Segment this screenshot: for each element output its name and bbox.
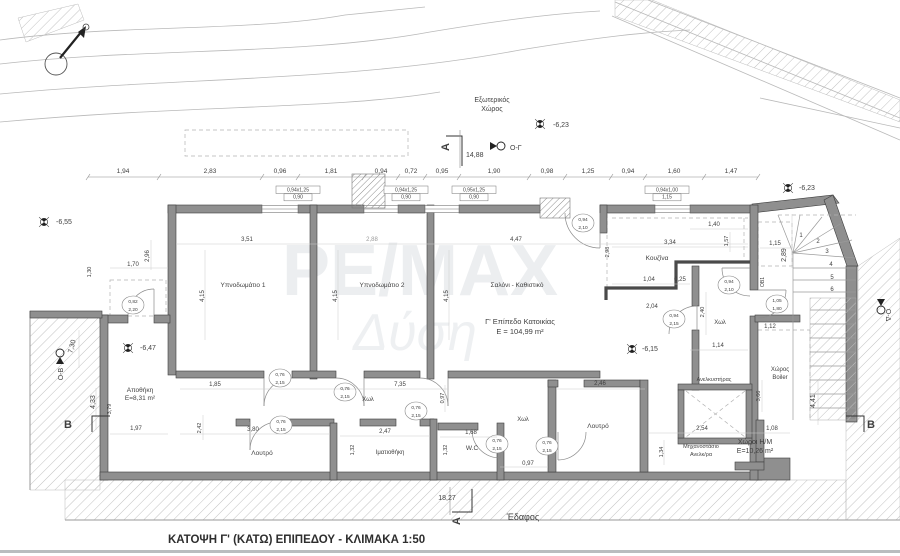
room-label-hall: Χωλ <box>714 320 726 326</box>
dim-label: 2,04 <box>646 304 658 310</box>
dim-label: 3,66 <box>756 391 762 402</box>
room-label-living: Σαλόνι - Καθιστικό <box>491 281 544 289</box>
door-tag: 2,15 <box>411 413 421 419</box>
dim-label: 1,25 <box>582 168 595 175</box>
level-value: -6,15 <box>642 346 658 353</box>
dim-label: 2,46 <box>594 381 606 387</box>
dim-label: 3,34 <box>664 240 676 246</box>
floor-plan-canvas: ΡΕ/ΜΑΧ Δύση <box>0 0 900 556</box>
dim-label: 1,04 <box>643 277 655 283</box>
dim-label: 18,27 <box>438 495 456 502</box>
room-label-boiler: Boiler <box>772 375 787 381</box>
dim-label: 1,08 <box>766 426 778 432</box>
dim-label: 1,57 <box>724 236 730 247</box>
room-label-hall: Χωλ <box>362 397 374 403</box>
door-tag: 0,82 <box>128 299 138 305</box>
dim-label: 0,25 <box>674 277 686 283</box>
room-label-machine-room: Μηχανοστάσιο <box>683 443 719 450</box>
section-marker-letter: A <box>440 143 452 151</box>
door-tag: 0,94 <box>724 279 734 285</box>
dim-label: 1,40 <box>708 222 720 228</box>
watermark-line1: ΡΕ/ΜΑΧ <box>282 231 558 311</box>
level-value: -6,47 <box>140 345 156 352</box>
room-label-storage: Αποθήκη <box>127 387 154 394</box>
door-tag: 0,94 <box>578 217 588 223</box>
window-tag: 0,95x1,25 <box>463 188 485 194</box>
room-area-mep: Ε=10,26 m² <box>737 448 774 455</box>
window-tag: 0,94x1,25 <box>395 188 417 194</box>
exterior-space-label: Εξωτερικός <box>474 96 510 104</box>
dim-label: 1,32 <box>350 445 356 456</box>
window-tag: 0,94x1,25 <box>287 188 309 194</box>
dim-label: 4,33 <box>90 395 97 409</box>
watermark-line2: Δύση <box>351 304 477 362</box>
door-tag: 1,80 <box>772 306 782 312</box>
door-tag: 2,10 <box>724 287 734 293</box>
room-label-wc: W.C <box>466 445 479 452</box>
dim-label: 2,83 <box>204 168 217 175</box>
window <box>655 206 690 213</box>
view-marker-label: Ο-Δ <box>884 309 891 322</box>
dim-label: 2,47 <box>379 429 391 435</box>
window <box>262 206 298 213</box>
window-tag: 0,90 <box>401 195 411 201</box>
window <box>425 206 459 213</box>
section-marker-letter: A <box>451 517 463 525</box>
dim-label: 0,72 <box>405 168 418 175</box>
level-value: -6,23 <box>553 122 569 129</box>
dim-label: 1,12 <box>764 324 776 330</box>
dim-label: 2,40 <box>700 307 706 318</box>
room-label-elevator: Ανελκυστήρας <box>697 376 732 383</box>
dim-label: 1,90 <box>488 168 501 175</box>
door-tag: 0,76 <box>276 419 286 425</box>
door-tag: 0,76 <box>275 372 285 378</box>
dim-label: 1,70 <box>127 262 139 268</box>
dim-label: 3,79 <box>107 404 113 415</box>
room-label-closet: Ιματιοθήκη <box>376 449 405 456</box>
dim-label: 1,60 <box>668 168 681 175</box>
exterior-space-label: Χώρος <box>481 105 503 113</box>
dim-label: 1,14 <box>712 343 724 349</box>
dim-label: 0,95 <box>436 168 449 175</box>
room-label-hall: Χωλ <box>517 417 529 423</box>
level-value: -6,23 <box>799 185 815 192</box>
dim-label: 0,94 <box>375 168 388 175</box>
dim-label: 1,68 <box>465 430 477 436</box>
dim-label: 2,89 <box>781 248 788 262</box>
room-label-kitchen: Κουζίνα <box>646 254 669 262</box>
dim-label: 2,96 <box>145 250 151 262</box>
ground-label: Έδαφος <box>506 512 540 522</box>
dim-label: 4,15 <box>333 290 339 302</box>
door-tag: 0,76 <box>542 440 552 446</box>
dim-label: 1,81 <box>325 168 338 175</box>
dim-label: 4,41 <box>810 394 817 408</box>
room-label-bath-1: Λουτρό <box>251 449 273 457</box>
dim-label: 2,54 <box>696 426 708 432</box>
dim-label: 3,80 <box>247 427 259 433</box>
entrance-step-hatch <box>540 198 570 218</box>
dim-label: 4,47 <box>510 237 522 243</box>
floor-level-label: Γ' Επίπεδο Κατοικίας <box>485 317 555 326</box>
view-marker-label: Ο-Γ <box>510 145 522 152</box>
door-tag: 1,05 <box>772 298 782 304</box>
door-tag: 0,76 <box>492 438 502 444</box>
exterior-pier-hatch <box>352 174 385 208</box>
door-tag: 0,94 <box>669 313 679 319</box>
level-value: -6,55 <box>56 219 72 226</box>
door-tag: 0,76 <box>411 405 421 411</box>
door-tag: 2,15 <box>275 380 285 386</box>
drawing-title: ΚΑΤΟΨΗ Γ' (ΚΑΤΩ) ΕΠΙΠΕΔΟΥ - ΚΛΙΜΑΚΑ 1:50 <box>168 534 425 546</box>
section-marker-letter: B <box>64 419 72 431</box>
dim-label: 1,32 <box>443 445 449 456</box>
window-tag: 1,15 <box>662 195 672 201</box>
dim-label: 2,88 <box>366 237 378 243</box>
dim-label: 0,97 <box>440 393 446 404</box>
dim-label: 4,15 <box>444 290 450 302</box>
dim-label: 0,96 <box>274 168 287 175</box>
dim-total: 14,88 <box>466 152 484 159</box>
room-label-bedroom-2: Υπνοδωμάτιο 2 <box>360 281 405 289</box>
dim-label: 2,98 <box>605 247 611 258</box>
dim-label: 1,85 <box>209 382 221 388</box>
window-tag: 0,90 <box>293 195 303 201</box>
section-marker-letter: B <box>867 419 875 431</box>
room-area-storage: Ε=8,31 m² <box>125 395 156 402</box>
door-tag: 0,76 <box>340 386 350 392</box>
dim-label: 0,94 <box>622 168 635 175</box>
window-tag: 0,94x1,00 <box>656 188 678 194</box>
door-tag: 2,20 <box>128 307 138 313</box>
door-tag: 2,10 <box>578 225 588 231</box>
dim-label: 3,51 <box>241 237 253 243</box>
room-label-bedroom-1: Υπνοδωμάτιο 1 <box>221 281 266 289</box>
door-tag: 2,15 <box>276 427 286 433</box>
view-marker-label: Ο-Β <box>58 367 65 380</box>
dim-label: 1,97 <box>130 426 142 432</box>
dim-label: 1,94 <box>117 168 130 175</box>
dim-label: 1,30 <box>87 267 93 278</box>
dim-label: 1,34 <box>659 447 665 458</box>
door-tag: 2,15 <box>492 446 502 452</box>
room-label-mep: Χώροι Η/Μ <box>738 438 773 446</box>
door-tag: 2,15 <box>340 394 350 400</box>
dim-label: 1,15 <box>769 241 781 247</box>
dim-label: 1,47 <box>725 168 738 175</box>
room-label-bath-2: Λουτρό <box>587 422 609 430</box>
door-tag: 2,15 <box>542 448 552 454</box>
dim-label: 7,35 <box>394 382 406 388</box>
room-label-boiler: Χώρος <box>771 367 789 373</box>
dim-label: 4,15 <box>200 290 206 302</box>
floor-plan-sheet: ΡΕ/ΜΑΧ Δύση <box>0 0 900 556</box>
dim-label: ΟΒ1 <box>760 277 766 287</box>
room-label-machine-room: Ανελκ/ρα <box>690 452 713 458</box>
dim-label: 0,97 <box>522 461 534 467</box>
dim-label: 0,98 <box>541 168 554 175</box>
window-tag: 0,90 <box>469 195 479 201</box>
floor-area-label: Ε = 104,99 m² <box>496 327 544 336</box>
door-tag: 2,15 <box>669 321 679 327</box>
dim-label: 2,42 <box>197 423 203 434</box>
